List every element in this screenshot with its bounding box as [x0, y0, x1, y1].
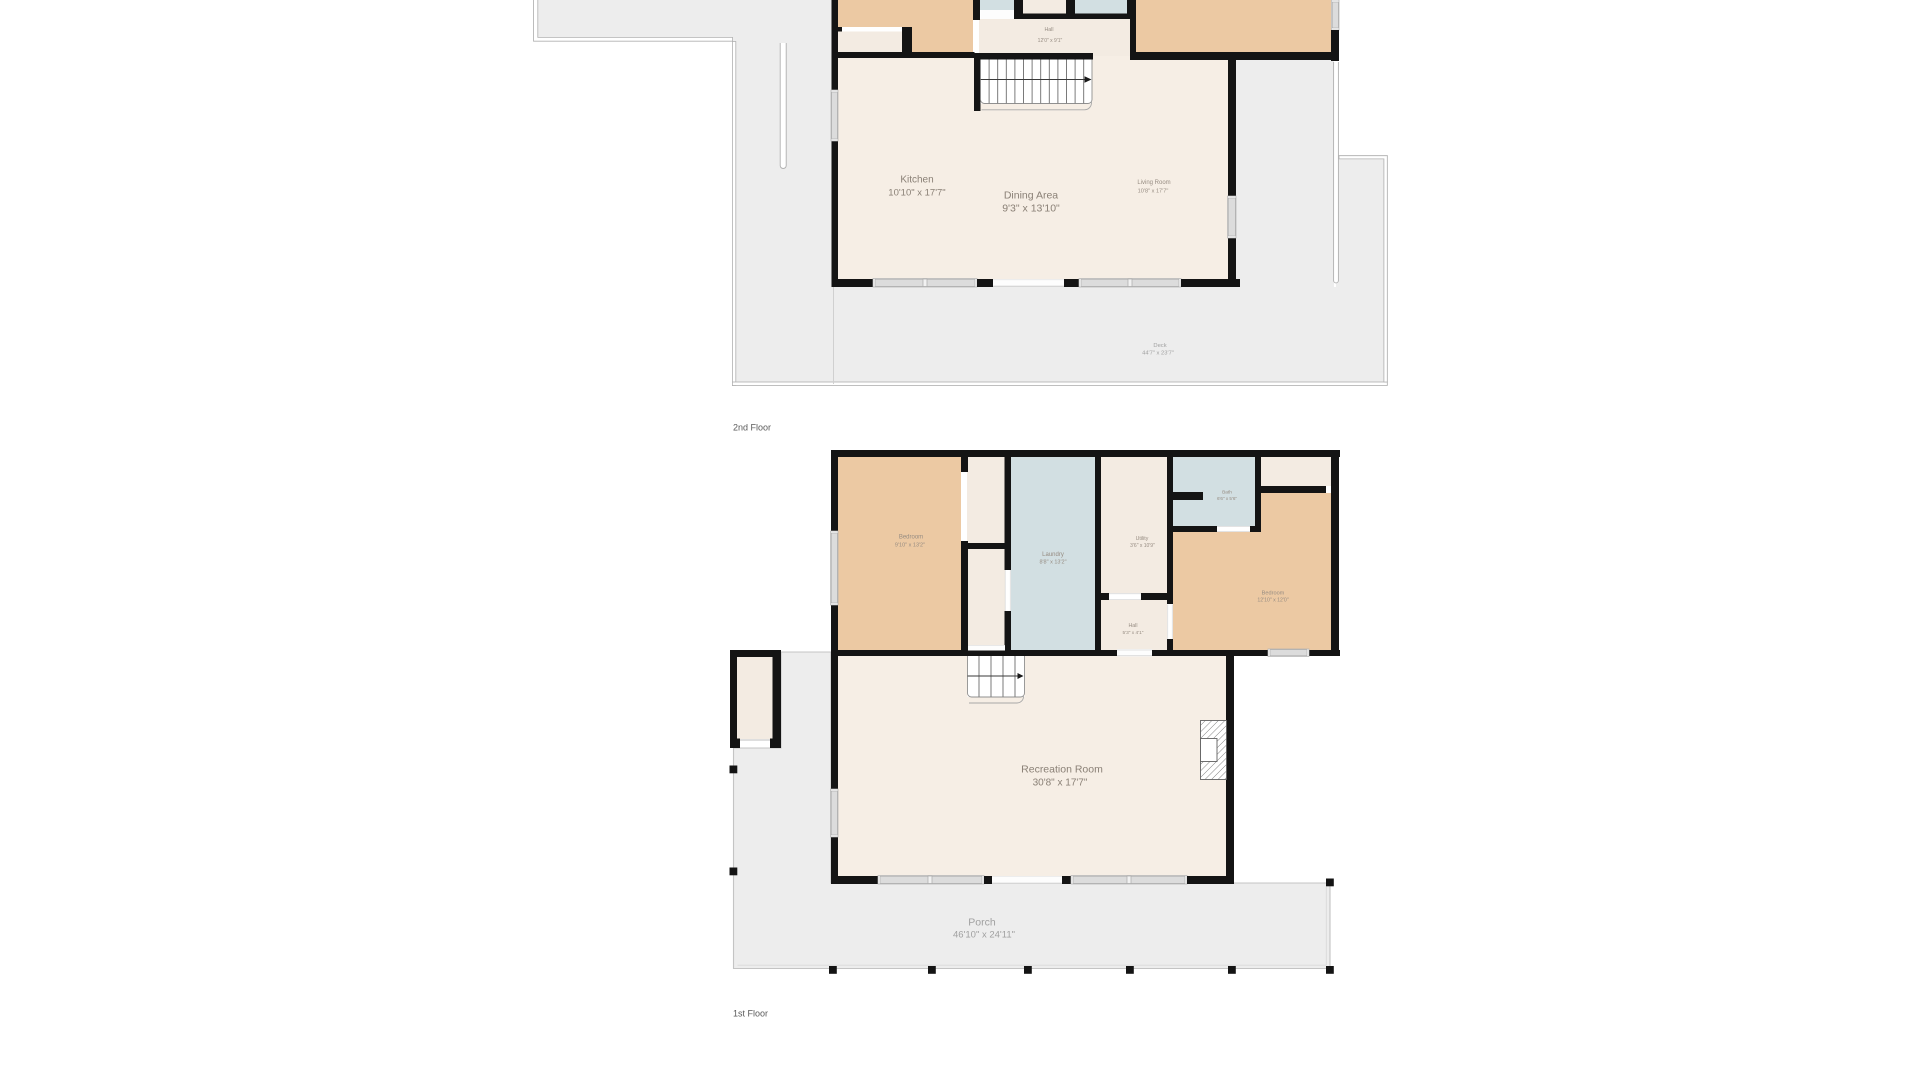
svg-text:5'3" x 4'1": 5'3" x 4'1": [1123, 630, 1144, 636]
svg-text:12'10" x 12'0": 12'10" x 12'0": [1257, 598, 1288, 604]
svg-text:Laundry: Laundry: [1042, 552, 1064, 558]
svg-text:Deck: Deck: [1153, 343, 1166, 349]
svg-text:Living Room: Living Room: [1137, 180, 1170, 186]
svg-text:Utility: Utility: [1136, 536, 1149, 542]
svg-text:46'10" x 24'11": 46'10" x 24'11": [953, 930, 1015, 941]
svg-text:Recreation Room: Recreation Room: [1021, 764, 1103, 776]
svg-text:Kitchen: Kitchen: [900, 175, 933, 186]
svg-text:8'8" x 13'2": 8'8" x 13'2": [1039, 560, 1066, 566]
svg-text:1st Floor: 1st Floor: [733, 1009, 768, 1019]
svg-text:9'10" x 13'2": 9'10" x 13'2": [895, 543, 925, 549]
svg-text:12'0" x 9'1": 12'0" x 9'1": [1038, 38, 1063, 44]
svg-text:3'6" x 10'9": 3'6" x 10'9": [1130, 543, 1155, 549]
svg-text:2nd Floor: 2nd Floor: [733, 423, 771, 433]
svg-text:Bedroom: Bedroom: [899, 535, 923, 541]
svg-text:Bath: Bath: [1222, 490, 1232, 496]
svg-text:Porch: Porch: [968, 917, 996, 929]
svg-text:Dining Area: Dining Area: [1004, 190, 1058, 202]
svg-text:9'3" x 13'10": 9'3" x 13'10": [1002, 203, 1060, 215]
svg-text:30'8" x 17'7": 30'8" x 17'7": [1033, 778, 1088, 789]
svg-text:Hall: Hall: [1129, 623, 1138, 629]
svg-text:10'8" x 17'7": 10'8" x 17'7": [1138, 189, 1169, 195]
svg-text:44'7" x 23'7": 44'7" x 23'7": [1142, 351, 1174, 357]
svg-text:10'10" x 17'7": 10'10" x 17'7": [888, 188, 945, 199]
svg-text:Hall: Hall: [1045, 27, 1054, 33]
svg-text:6'6" x 5'6": 6'6" x 5'6": [1217, 496, 1237, 501]
svg-text:Bedroom: Bedroom: [1262, 591, 1285, 597]
